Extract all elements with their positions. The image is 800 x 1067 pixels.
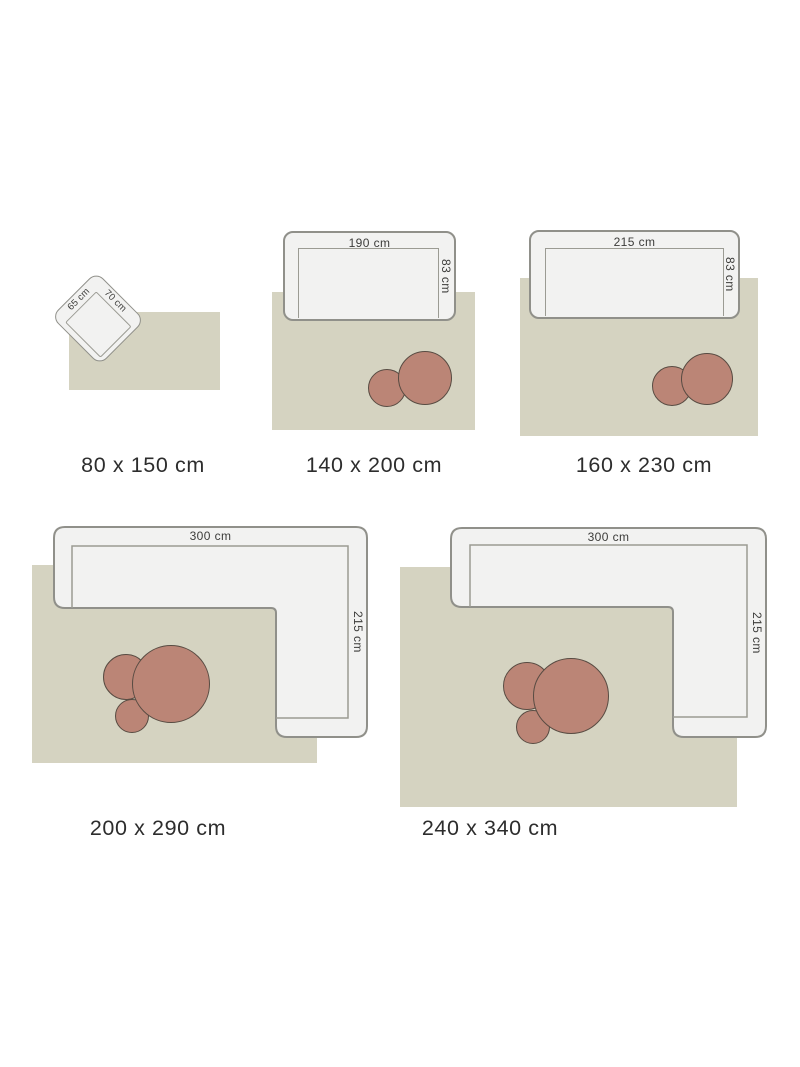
- corner-sofa-shape: [450, 527, 767, 738]
- sofa-width-label: 190 cm: [285, 235, 454, 251]
- sofa-top-view: 215 cm 83 cm: [529, 230, 740, 319]
- rug-size-caption: 140 x 200 cm: [264, 453, 484, 478]
- rug-size-caption: 200 x 290 cm: [48, 816, 268, 841]
- rug-size-caption: 240 x 340 cm: [380, 816, 600, 841]
- sofa-depth-label: 215 cm: [348, 526, 368, 738]
- sofa-width-label: 300 cm: [450, 529, 767, 545]
- sofa-width-label: 300 cm: [53, 528, 368, 544]
- sofa-depth-label: 215 cm: [747, 527, 767, 738]
- rug-size-caption: 160 x 230 cm: [534, 453, 754, 478]
- sofa-depth-label: 83 cm: [722, 232, 738, 317]
- side-table-large: [398, 351, 452, 405]
- corner-sofa-top-view: 300 cm 215 cm: [53, 526, 368, 738]
- sofa-width-label: 215 cm: [531, 234, 738, 250]
- side-table-large: [681, 353, 733, 405]
- sofa-seat: [545, 248, 724, 316]
- rug-size-caption: 80 x 150 cm: [33, 453, 253, 478]
- side-table-large: [533, 658, 609, 734]
- sofa-seat: [298, 248, 439, 318]
- rug-size-guide: 65 cm 70 cm 80 x 150 cm 190 cm 83 cm 140…: [0, 0, 800, 1067]
- sofa-top-view: 190 cm 83 cm: [283, 231, 456, 321]
- side-table-large: [132, 645, 210, 723]
- sofa-depth-label: 83 cm: [438, 233, 454, 319]
- corner-sofa-shape: [53, 526, 368, 738]
- corner-sofa-top-view: 300 cm 215 cm: [450, 527, 767, 738]
